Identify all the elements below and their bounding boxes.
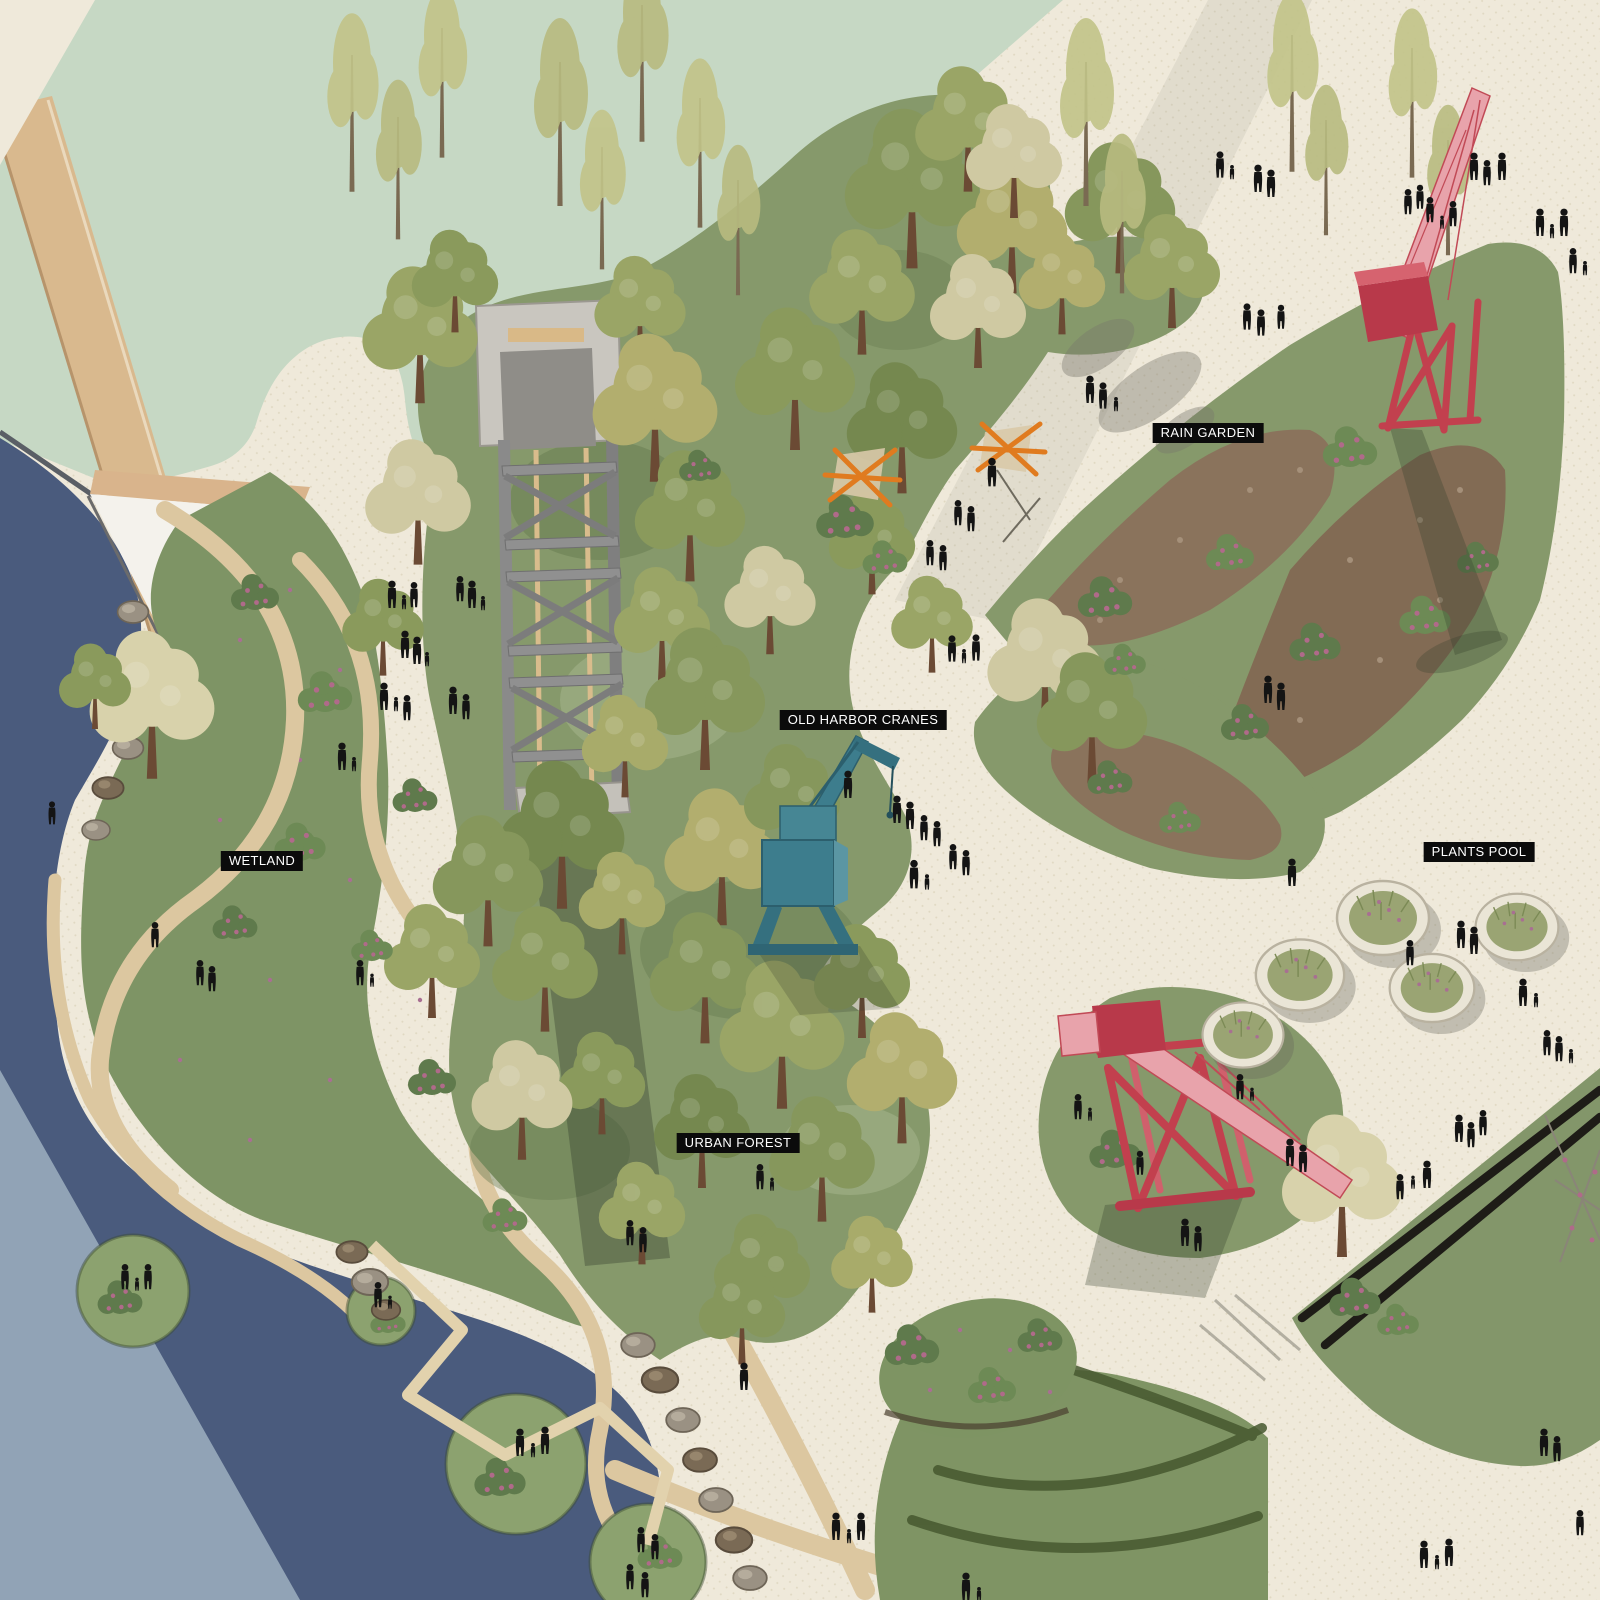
label-plants-pool: PLANTS POOL	[1424, 842, 1535, 862]
label-old-harbor-cranes: OLD HARBOR CRANES	[780, 710, 947, 730]
label-rain-garden: RAIN GARDEN	[1153, 423, 1264, 443]
masterplan-illustration	[0, 0, 1600, 1600]
masterplan-rendering: RAIN GARDEN OLD HARBOR CRANES PLANTS POO…	[0, 0, 1600, 1600]
label-urban-forest: URBAN FOREST	[677, 1133, 800, 1153]
label-wetland: WETLAND	[221, 851, 303, 871]
